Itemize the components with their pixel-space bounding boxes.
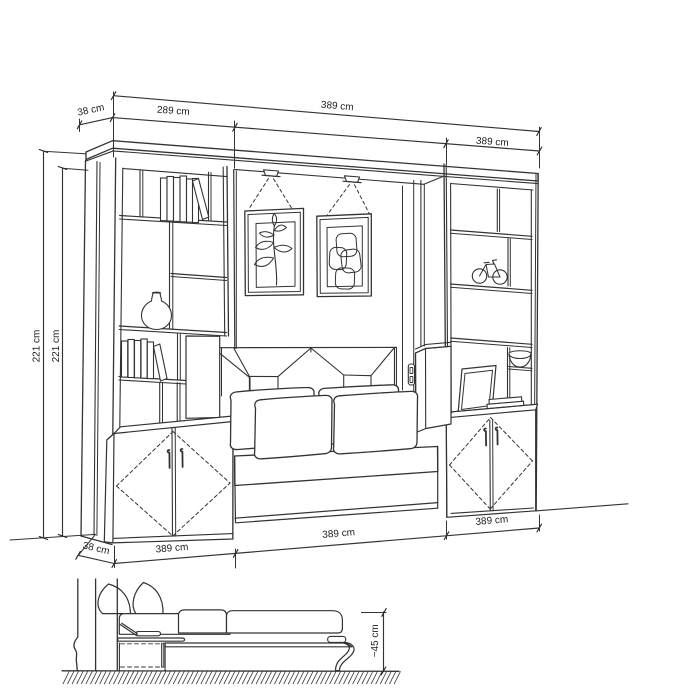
svg-text:~45 cm: ~45 cm: [370, 624, 381, 657]
svg-text:221 cm: 221 cm: [51, 330, 62, 363]
svg-text:221 cm: 221 cm: [32, 330, 43, 363]
